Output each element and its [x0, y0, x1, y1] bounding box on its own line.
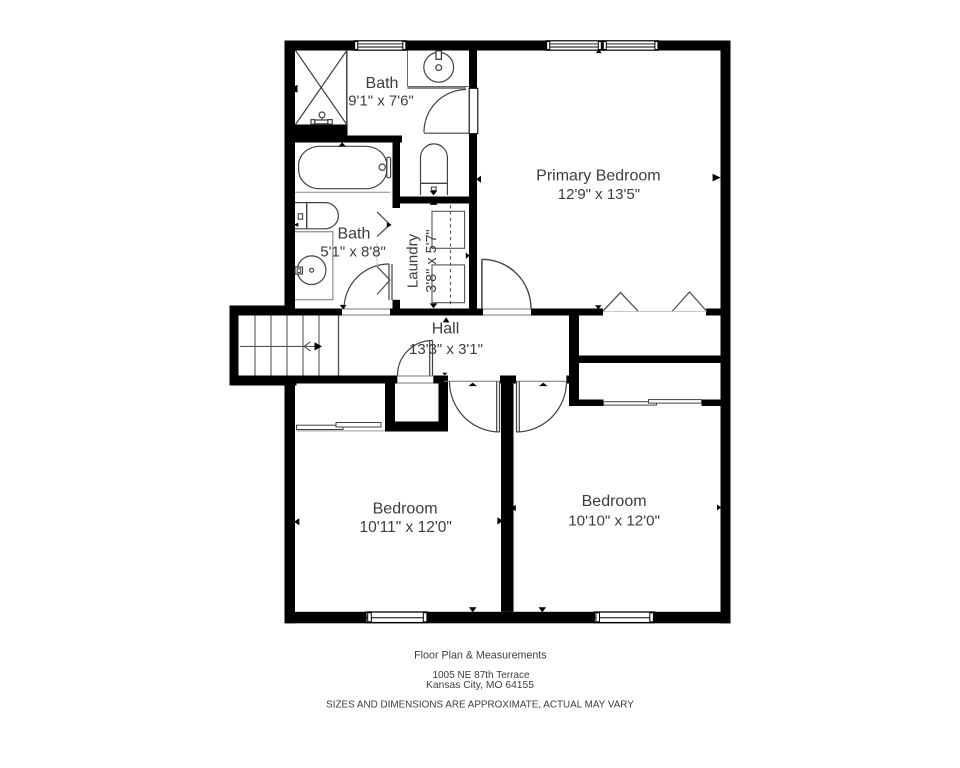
svg-text:10'10" x 12'0": 10'10" x 12'0"	[568, 512, 660, 529]
svg-text:Kansas City, MO 64155: Kansas City, MO 64155	[426, 680, 534, 691]
svg-text:Bath: Bath	[366, 75, 399, 92]
svg-text:10'11" x 12'0": 10'11" x 12'0"	[359, 519, 451, 536]
svg-text:SIZES AND DIMENSIONS ARE APPRO: SIZES AND DIMENSIONS ARE APPROXIMATE, AC…	[326, 699, 634, 710]
svg-text:Bedroom: Bedroom	[373, 501, 438, 518]
svg-text:13'3" x 3'1": 13'3" x 3'1"	[409, 341, 483, 358]
svg-text:5'1" x 8'8": 5'1" x 8'8"	[320, 244, 386, 261]
svg-text:Bath: Bath	[337, 226, 370, 243]
svg-text:Bedroom: Bedroom	[582, 493, 647, 510]
svg-text:3'8" x 5'7": 3'8" x 5'7"	[424, 229, 440, 292]
svg-text:Primary Bedroom: Primary Bedroom	[536, 167, 660, 184]
svg-text:Laundry: Laundry	[405, 233, 422, 288]
svg-text:Hall: Hall	[432, 320, 460, 337]
svg-text:9'1" x 7'6": 9'1" x 7'6"	[348, 93, 414, 110]
svg-text:12'9" x 13'5": 12'9" x 13'5"	[558, 186, 640, 203]
svg-text:Floor Plan & Measurements: Floor Plan & Measurements	[414, 649, 546, 661]
